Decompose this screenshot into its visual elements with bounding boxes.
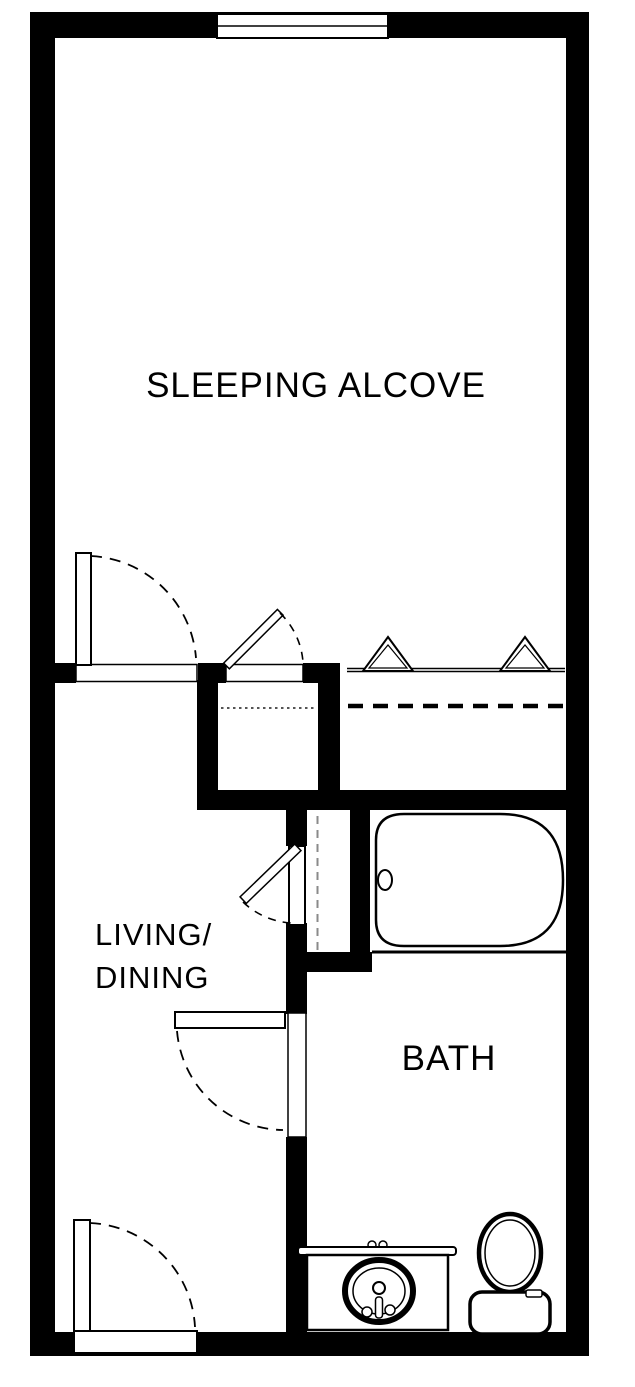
wall-bath-top [197,790,589,810]
bathtub [372,814,566,952]
sink-vanity [298,1241,456,1330]
bathtub-outline [376,814,563,946]
small-closet-door-opening [226,665,303,682]
room-label-living-line2: DINING [95,960,210,995]
sink-tap-right [385,1305,395,1315]
toilet-tank [470,1292,550,1334]
wall-left [30,12,55,1356]
room-label-sleeping-alcove: SLEEPING ALCOVE [146,366,486,405]
bath-door-leaf [175,1012,285,1028]
entry-door-leaf [74,1220,90,1331]
window [217,14,388,38]
wall-divider-seg-left [55,663,76,683]
wall-living-bath-bottom [286,1137,307,1333]
sleeping-door-opening [76,665,197,682]
room-label-living-line1: LIVING/ [95,917,212,952]
wall-right [566,12,589,1356]
wall-linen-bottom [286,952,372,972]
sleeping-door-leaf [76,553,91,665]
page-background [0,0,635,1387]
floorplan-svg: SLEEPING ALCOVE LIVING/ DINING BATH [0,0,635,1387]
wall-linen-right [350,810,370,972]
sink-faucet-stem [376,1297,383,1318]
bathtub-drain [378,870,392,890]
bath-door-opening [288,1013,306,1137]
entry-door-threshold [74,1331,197,1353]
toilet-flush-button [526,1290,542,1297]
toilet [470,1214,550,1334]
sink-drain [373,1282,385,1294]
toilet-bowl-outer [479,1214,541,1292]
floorplan-page: SLEEPING ALCOVE LIVING/ DINING BATH [0,0,635,1387]
room-label-bath: BATH [402,1039,497,1078]
wall-living-bath-stub [286,810,307,846]
sink-tap-left [362,1307,372,1317]
